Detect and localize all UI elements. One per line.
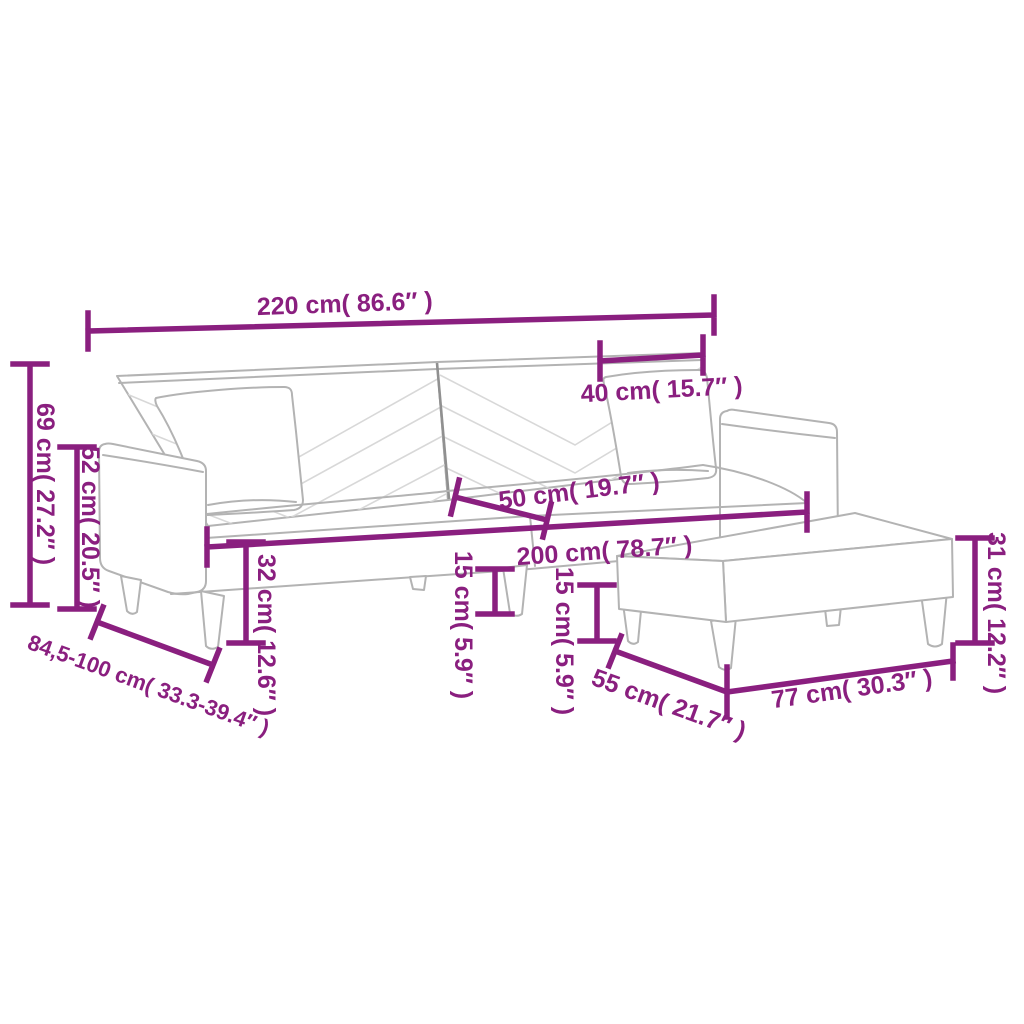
dim-sofa-leg-height-label: 15 cm( 5.9″ ) xyxy=(449,551,477,699)
dim-armrest-height-label: 52 cm( 20.5″ ) xyxy=(76,446,104,608)
dim-overall-width: 220 cm( 86.6″ ) xyxy=(88,287,714,349)
dim-footstool-leg-height-line xyxy=(580,585,614,641)
dim-adjustable-depth: 84,5-100 cm( 33.3-39.4″ ) xyxy=(24,607,272,740)
dim-back-height-label: 69 cm( 27.2″ ) xyxy=(31,403,59,565)
dim-adjustable-depth-label: 84,5-100 cm( 33.3-39.4″ ) xyxy=(24,630,272,741)
dim-footstool-leg-height-label: 15 cm( 5.9″ ) xyxy=(550,567,578,715)
dim-footstool-width-label: 77 cm( 30.3″ ) xyxy=(770,664,934,714)
dim-footstool-height: 31 cm( 12.2″ ) xyxy=(958,532,1010,694)
dim-footstool-height-label: 31 cm( 12.2″ ) xyxy=(982,532,1010,694)
sofa-leg-front-left xyxy=(201,591,224,649)
dim-seat-height: 32 cm( 12.6″ ) xyxy=(229,542,280,716)
dim-armrest-height: 52 cm( 20.5″ ) xyxy=(60,446,104,609)
diagram-canvas: 220 cm( 86.6″ ) 40 cm( 15.7″ ) 69 cm( 27… xyxy=(0,0,1024,1024)
dim-back-height: 69 cm( 27.2″ ) xyxy=(13,364,59,605)
sofa-leg-back xyxy=(410,576,426,590)
sofa-leg-front-middle xyxy=(503,565,527,616)
dimension-diagram-page: { "page": { "kind": "product-dimension-d… xyxy=(0,0,1024,1024)
dim-overall-width-label: 220 cm( 86.6″ ) xyxy=(256,287,433,321)
footstool-leg-front-left xyxy=(711,617,736,670)
dim-footstool-width: 77 cm( 30.3″ ) xyxy=(727,645,953,714)
sofa-leg-armrest xyxy=(121,576,141,614)
left-armrest xyxy=(99,444,206,595)
dim-seat-height-label: 32 cm( 12.6″ ) xyxy=(252,554,280,716)
